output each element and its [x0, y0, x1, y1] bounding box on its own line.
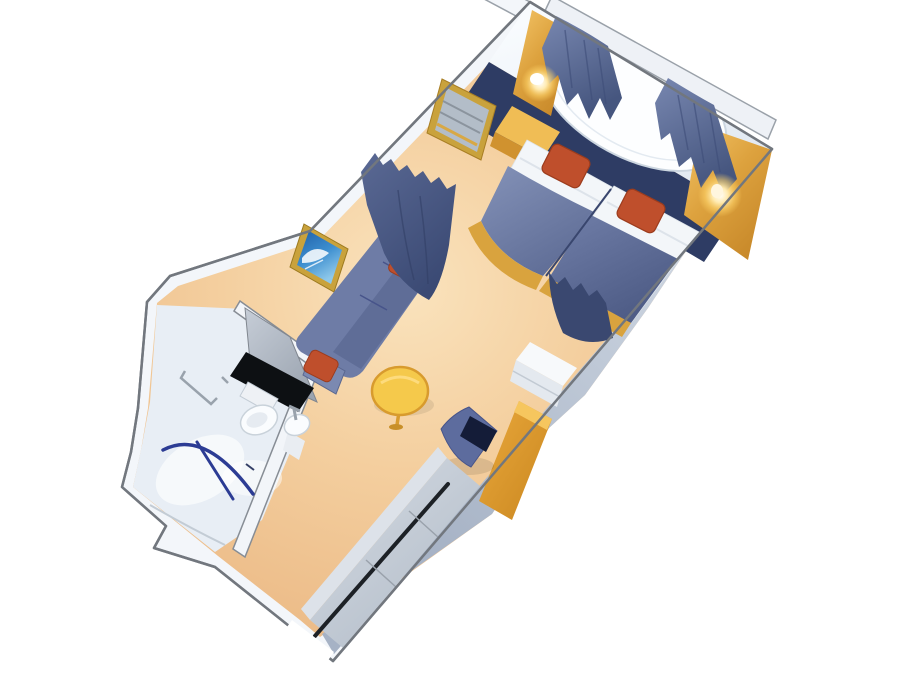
stateroom-floorplan: [0, 0, 900, 700]
table-base: [389, 424, 403, 430]
wall-lamp-right: [711, 184, 723, 198]
round-coffee-table: [372, 367, 428, 415]
wall-lamp-left: [530, 73, 544, 85]
stateroom-floorplan-stage: [0, 0, 900, 700]
